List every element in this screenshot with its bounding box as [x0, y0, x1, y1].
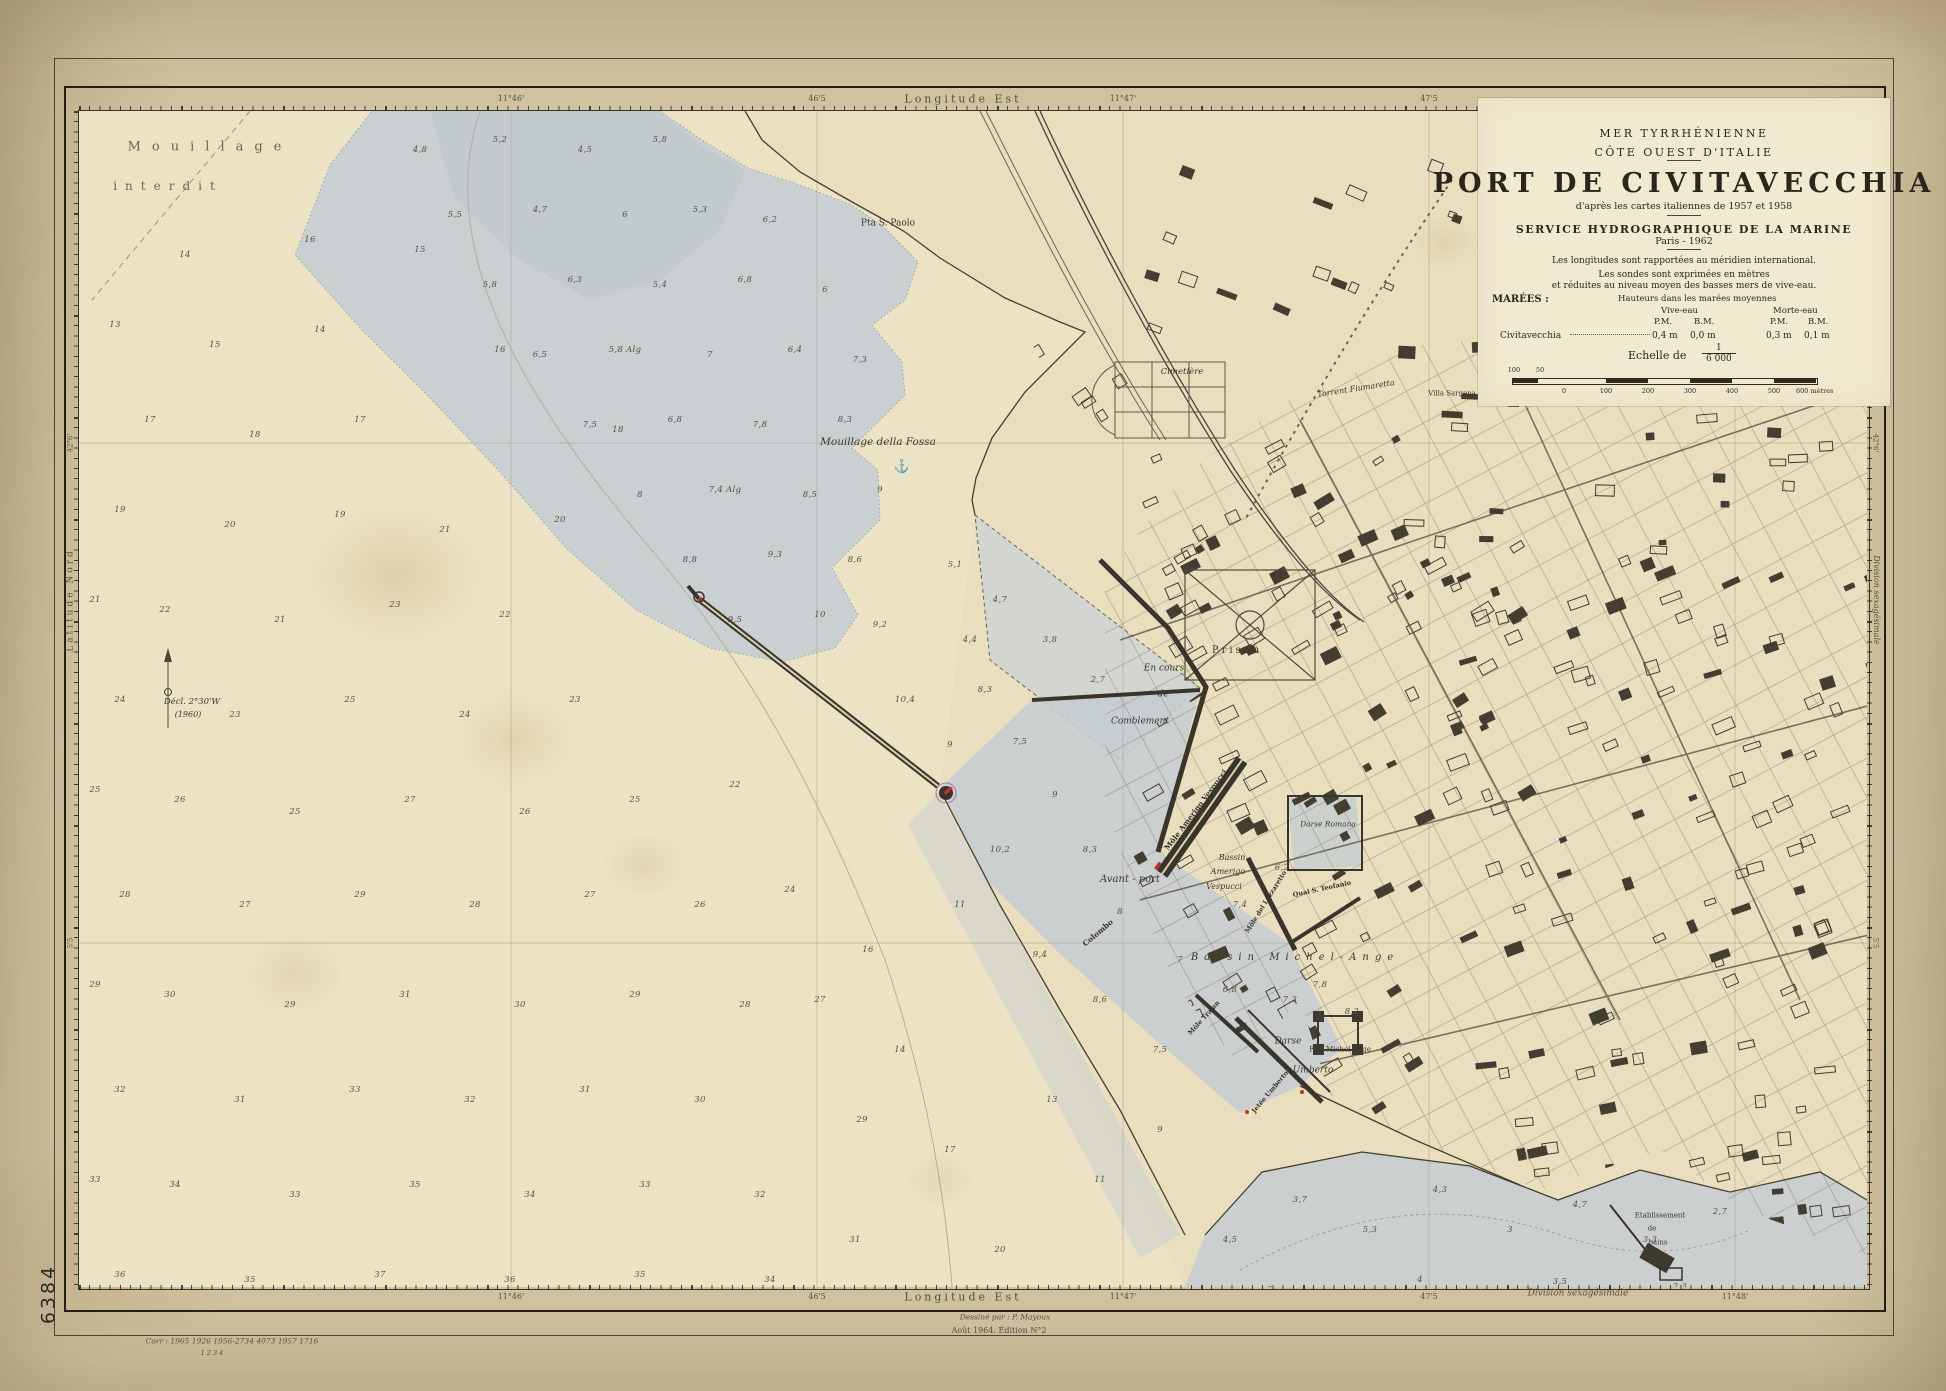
scale-label: Echelle de	[1628, 350, 1686, 361]
scale-bar-label: 300	[1670, 387, 1710, 395]
scale-denominator: 6 000	[1702, 353, 1736, 364]
scale-bar-label: 400	[1712, 387, 1752, 395]
scale-numerator: 1	[1702, 344, 1736, 353]
tide-value-2: 0,0 m	[1690, 332, 1716, 341]
building	[1772, 1188, 1784, 1195]
scale-bar-label: 200	[1628, 387, 1668, 395]
building	[985, 416, 999, 431]
scale-bar-seg	[1606, 378, 1648, 383]
tide-value-1: 0,4 m	[1652, 332, 1678, 341]
scale-fraction: 1 6 000	[1702, 344, 1736, 364]
building	[1659, 540, 1667, 546]
tides-station: Civitavecchia	[1500, 332, 1561, 341]
tide-value-4: 0,1 m	[1804, 332, 1830, 341]
chart-scan: { "colors":{"paper":"#d3c5a3","map_bg":"…	[0, 0, 1946, 1391]
building	[1489, 508, 1503, 514]
building	[1721, 501, 1730, 508]
tide-value-3: 0,3 m	[1766, 332, 1792, 341]
note-soundings-1: Les sondes sont exprimées en mètres	[1598, 271, 1769, 280]
building	[959, 394, 975, 407]
building	[1868, 861, 1889, 877]
tides-pm1: P.M.	[1654, 318, 1672, 327]
tides-neap: Morte-eau	[1773, 307, 1818, 316]
building	[1646, 432, 1655, 440]
tides-bm2: B.M.	[1808, 318, 1828, 327]
note-longitudes: Les longitudes sont rapportées au méridi…	[1552, 257, 1816, 266]
chart-title: PORT DE CIVITAVECCHIA	[1433, 170, 1936, 197]
tides-bm1: B.M.	[1694, 318, 1714, 327]
building	[960, 402, 973, 414]
scale-bar-ext-seg	[1512, 378, 1538, 383]
building	[1479, 536, 1493, 542]
building	[1797, 1204, 1807, 1215]
building	[1871, 941, 1885, 953]
tides-pm2: P.M.	[1770, 318, 1788, 327]
note-soundings-2: et réduites au niveau moyen des basses m…	[1552, 282, 1817, 291]
building	[1713, 473, 1726, 482]
scale-bar: 100500100200300400500600 mètres	[1512, 366, 1856, 396]
scale-bar-label: 500	[1754, 387, 1794, 395]
building	[1767, 427, 1781, 438]
title-coast: CÔTE OUEST D'ITALIE	[1594, 147, 1773, 158]
tides-header: Hauteurs dans les marées moyennes	[1618, 295, 1777, 304]
scale-bar-label: 600 mètres	[1796, 387, 1866, 395]
title-block: MER TYRRHÉNIENNE CÔTE OUEST D'ITALIE POR…	[1478, 98, 1890, 406]
divider	[1667, 215, 1701, 216]
title-sea-area: MER TYRRHÉNIENNE	[1599, 128, 1768, 139]
prohibited-anchorage-limit	[92, 111, 250, 300]
building	[973, 296, 991, 314]
building	[985, 370, 1005, 389]
scale-bar-rail	[1512, 378, 1818, 385]
building	[1032, 344, 1045, 358]
building	[1441, 411, 1462, 419]
scale-bar-label: 100	[1586, 387, 1626, 395]
title-agency: SERVICE HYDROGRAPHIQUE DE LA MARINE	[1516, 224, 1852, 235]
divider	[1667, 160, 1701, 161]
title-source: d'après les cartes italiennes de 1957 et…	[1576, 202, 1792, 212]
divider	[1667, 249, 1701, 250]
declination-arrow	[164, 648, 172, 728]
tides-label: MARÉES :	[1492, 295, 1549, 305]
dotted-leader	[1570, 334, 1650, 335]
building	[1398, 346, 1416, 359]
scale-ext-label: 100	[1504, 366, 1524, 374]
scale-bar-label: 0	[1544, 387, 1584, 395]
darse-romana-water	[1288, 796, 1362, 870]
title-imprint: Paris - 1962	[1655, 237, 1713, 247]
tides-spring: Vive-eau	[1661, 307, 1698, 316]
scale-bar-seg	[1774, 378, 1816, 383]
scale-bar-seg	[1690, 378, 1732, 383]
scale-ext-label: 50	[1530, 366, 1550, 374]
